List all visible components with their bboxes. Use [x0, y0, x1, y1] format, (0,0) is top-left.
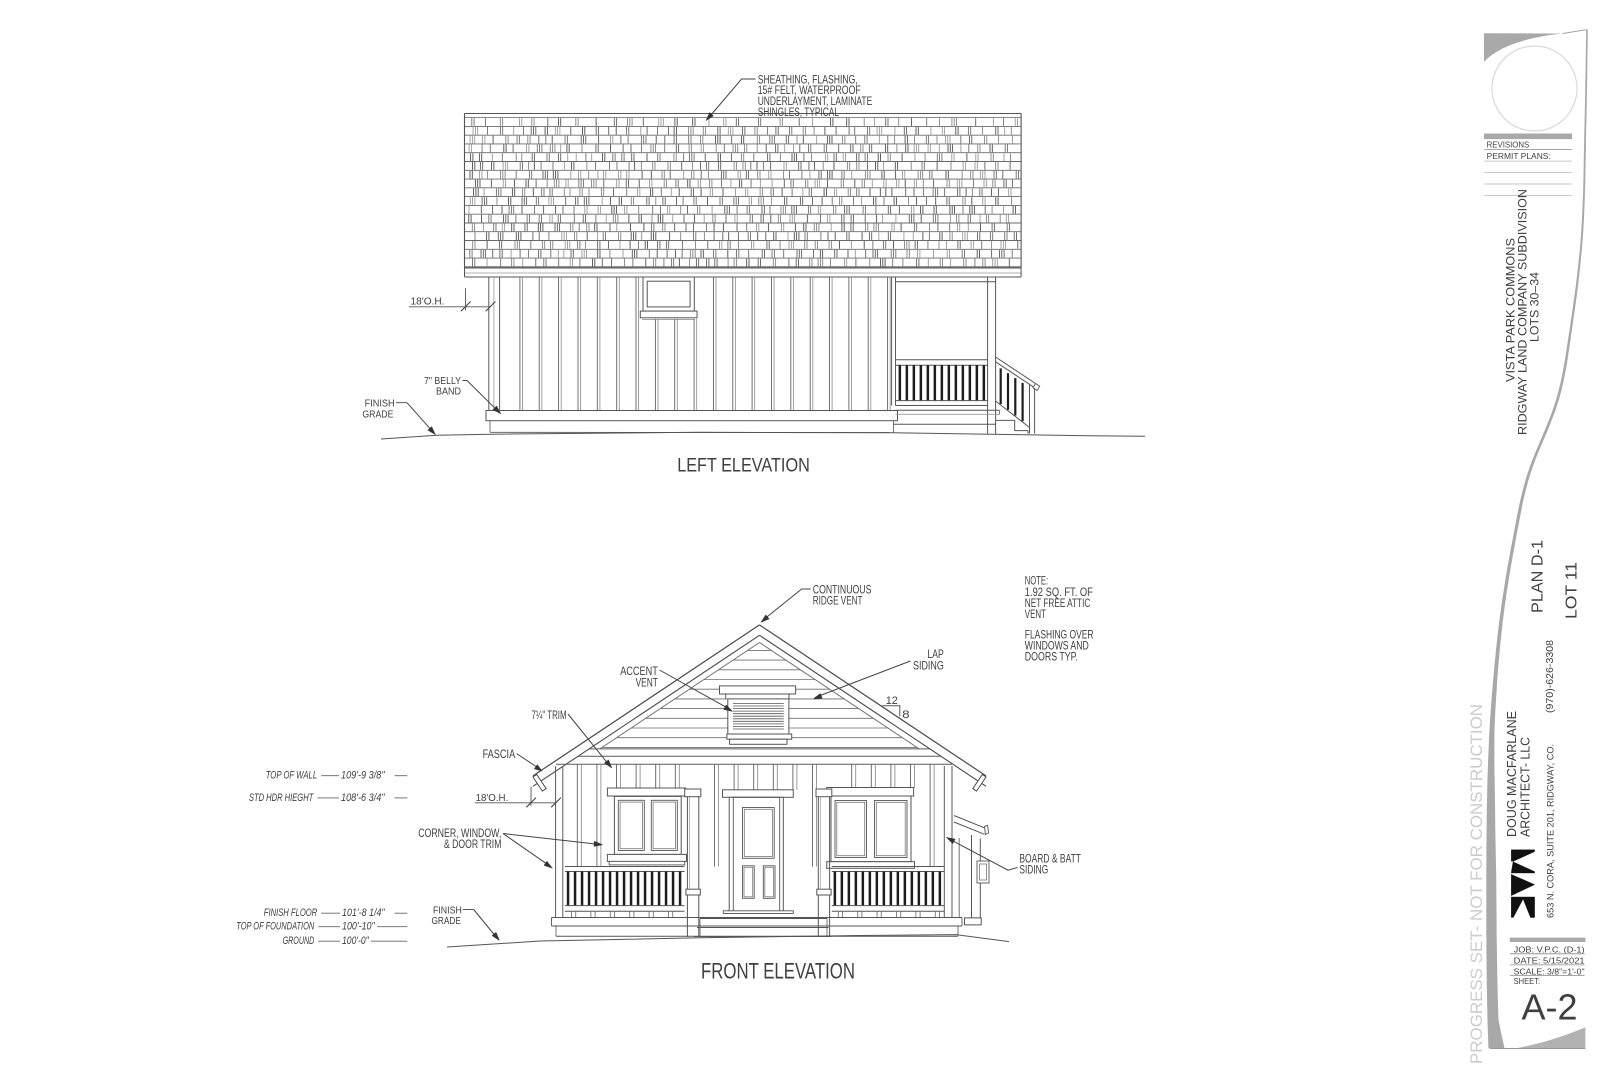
svg-text:GROUND: GROUND [283, 935, 315, 947]
svg-text:FINISH FLOOR: FINISH FLOOR [264, 907, 317, 919]
svg-text:(970)-626-3308: (970)-626-3308 [1545, 640, 1556, 713]
svg-text:FRONT ELEVATION: FRONT ELEVATION [701, 958, 855, 983]
svg-text:PROGRESS SET- NOT FOR CONSTRU: PROGRESS SET- NOT FOR CONSTRUCTION [1468, 704, 1486, 1064]
svg-text:STD HDR HIEGHT: STD HDR HIEGHT [249, 792, 314, 804]
svg-text:DOORS TYP.: DOORS TYP. [1025, 649, 1078, 663]
svg-text:18'O.H.: 18'O.H. [476, 793, 509, 804]
svg-text:SHEET:: SHEET: [1514, 976, 1541, 986]
svg-text:BAND: BAND [436, 386, 461, 397]
svg-text:FINISH: FINISH [365, 399, 395, 410]
svg-text:101'-8 1/4": 101'-8 1/4" [342, 907, 385, 919]
svg-text:TOP OF FOUNDATION: TOP OF FOUNDATION [236, 921, 314, 933]
svg-text:8: 8 [902, 709, 910, 721]
svg-text:SIDING: SIDING [1019, 863, 1048, 877]
svg-text:653 N. CORA, SUITE 201, RIDGWA: 653 N. CORA, SUITE 201, RIDGWAY, CO. [1546, 744, 1556, 918]
svg-text:108'-6 3/4": 108'-6 3/4" [341, 792, 385, 804]
svg-text:100'-0": 100'-0" [342, 935, 370, 947]
svg-text:DATE: 5/15/2021: DATE: 5/15/2021 [1514, 956, 1585, 966]
svg-text:PERMIT PLANS:: PERMIT PLANS: [1487, 151, 1551, 161]
svg-text:GRADE: GRADE [432, 916, 462, 927]
svg-text:VENT: VENT [1025, 607, 1046, 621]
svg-text:LOTS 30–34: LOTS 30–34 [1530, 271, 1542, 342]
svg-text:RIDGE VENT: RIDGE VENT [813, 593, 863, 607]
svg-text:LEFT ELEVATION: LEFT ELEVATION [677, 454, 810, 476]
svg-text:PLAN D-1: PLAN D-1 [1530, 540, 1547, 613]
svg-text:REVISIONS: REVISIONS [1487, 140, 1530, 150]
svg-text:109'-9 3/8": 109'-9 3/8" [341, 770, 385, 782]
svg-text:VENT: VENT [636, 676, 659, 690]
svg-text:100'-10": 100'-10" [342, 921, 376, 933]
svg-text:7¼" TRIM: 7¼" TRIM [532, 708, 567, 722]
svg-text:TOP OF WALL: TOP OF WALL [266, 770, 318, 782]
svg-text:VISTA PARK COMMONS: VISTA PARK COMMONS [1506, 238, 1518, 382]
svg-text:FASCIA: FASCIA [483, 747, 516, 761]
svg-text:A-2: A-2 [1522, 987, 1578, 1028]
svg-text:18'O.H.: 18'O.H. [411, 297, 445, 308]
svg-text:DOUG MACFARLANE: DOUG MACFARLANE [1504, 711, 1519, 837]
svg-text:ARCHITECT- LLC: ARCHITECT- LLC [1519, 737, 1533, 837]
svg-text:SIDING: SIDING [913, 659, 944, 673]
svg-text:& DOOR TRIM: & DOOR TRIM [444, 837, 501, 851]
svg-text:RIDGWAY LAND COMPANY SUBDIVISI: RIDGWAY LAND COMPANY SUBDIVISION [1518, 189, 1530, 435]
svg-text:JOB: V.P.C. (D-1): JOB: V.P.C. (D-1) [1514, 944, 1585, 954]
svg-text:SHINGLES, TYPICAL: SHINGLES, TYPICAL [758, 105, 839, 119]
svg-text:LOT 11: LOT 11 [1564, 562, 1581, 619]
svg-text:GRADE: GRADE [362, 409, 393, 420]
